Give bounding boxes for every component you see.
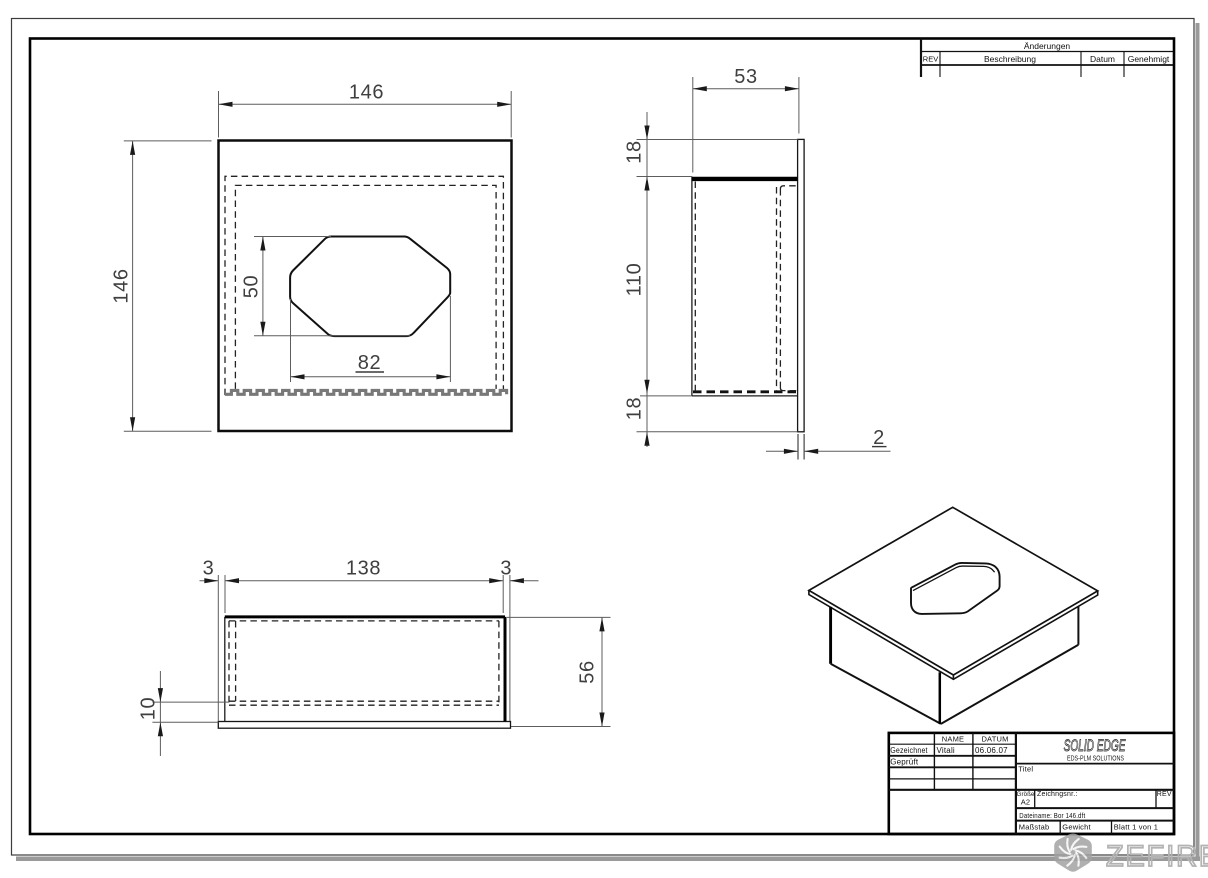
svg-text:2: 2 <box>873 427 885 449</box>
svg-text:REV: REV <box>923 55 938 64</box>
svg-text:EDS-PLM SOLUTIONS: EDS-PLM SOLUTIONS <box>1067 756 1124 763</box>
svg-text:Maßstab: Maßstab <box>1019 823 1050 832</box>
svg-text:53: 53 <box>734 66 757 88</box>
svg-text:3: 3 <box>500 558 512 580</box>
svg-text:Vitali: Vitali <box>937 746 955 755</box>
svg-text:110: 110 <box>624 263 646 297</box>
svg-text:138: 138 <box>346 558 381 580</box>
svg-text:Gewicht: Gewicht <box>1062 823 1091 832</box>
svg-text:ZEFIRE: ZEFIRE <box>1106 840 1208 873</box>
svg-text:Dateiname: Bor 146.dft: Dateiname: Bor 146.dft <box>1019 811 1086 820</box>
svg-text:146: 146 <box>349 82 384 104</box>
svg-text:REV: REV <box>1157 791 1172 798</box>
svg-text:18: 18 <box>624 140 646 163</box>
svg-text:SOLID EDGE: SOLID EDGE <box>1064 735 1126 754</box>
svg-text:A2: A2 <box>1021 797 1031 806</box>
svg-text:Datum: Datum <box>1090 54 1115 64</box>
svg-text:Beschreibung: Beschreibung <box>984 54 1036 64</box>
svg-text:Titel: Titel <box>1018 765 1033 774</box>
svg-text:50: 50 <box>241 275 263 298</box>
svg-text:10: 10 <box>138 697 160 720</box>
svg-text:146: 146 <box>111 268 133 303</box>
svg-text:Gezeichnet: Gezeichnet <box>890 746 928 755</box>
svg-text:18: 18 <box>624 397 646 420</box>
svg-text:Blatt 1 von 1: Blatt 1 von 1 <box>1114 823 1158 832</box>
svg-text:DATUM: DATUM <box>981 734 1008 743</box>
svg-text:NAME: NAME <box>942 734 964 743</box>
svg-text:Zeichngsnr.:: Zeichngsnr.: <box>1037 791 1078 798</box>
svg-text:Geprüft: Geprüft <box>890 758 919 767</box>
svg-text:56: 56 <box>577 660 599 683</box>
svg-text:06.06.07: 06.06.07 <box>975 746 1008 755</box>
svg-text:3: 3 <box>203 558 215 580</box>
svg-text:Genehmigt: Genehmigt <box>1128 54 1170 64</box>
svg-text:82: 82 <box>358 352 381 374</box>
svg-text:Änderungen: Änderungen <box>1024 41 1071 51</box>
